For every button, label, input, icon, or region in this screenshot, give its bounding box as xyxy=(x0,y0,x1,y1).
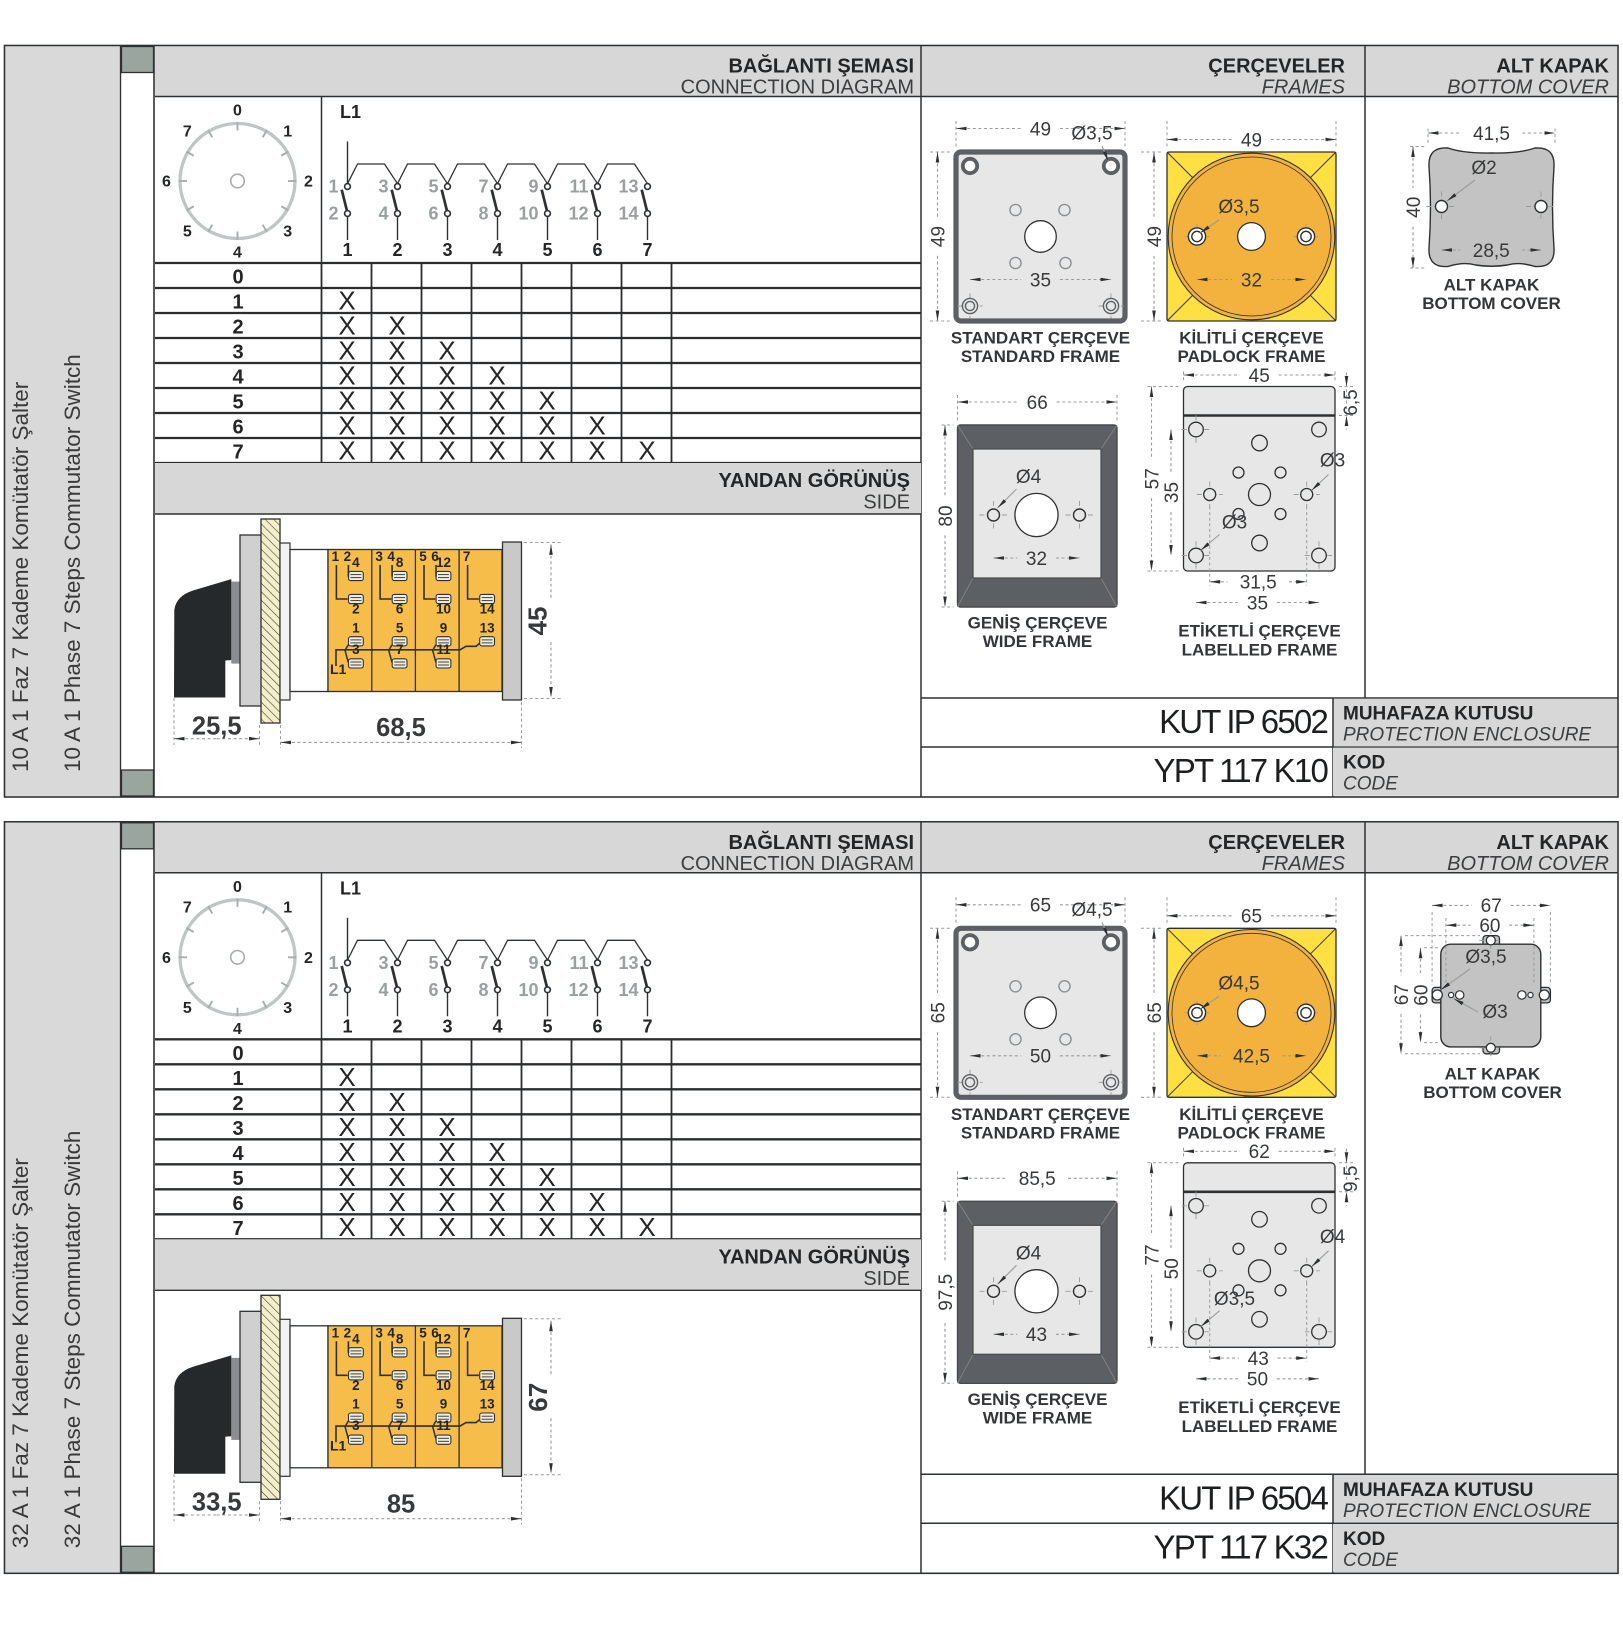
svg-text:25,5: 25,5 xyxy=(192,712,242,740)
svg-text:L1: L1 xyxy=(330,1437,347,1453)
svg-text:2: 2 xyxy=(232,317,243,339)
svg-text:42,5: 42,5 xyxy=(1233,1047,1270,1068)
svg-text:12: 12 xyxy=(436,1331,451,1346)
svg-text:12: 12 xyxy=(568,980,588,1000)
svg-text:6: 6 xyxy=(428,980,438,1000)
svg-text:4: 4 xyxy=(378,980,388,1000)
svg-text:50: 50 xyxy=(1030,1047,1051,1068)
svg-text:5: 5 xyxy=(428,177,438,197)
svg-text:X: X xyxy=(638,1212,655,1242)
svg-text:KOD: KOD xyxy=(1343,753,1385,774)
svg-text:X: X xyxy=(438,436,455,466)
svg-text:X: X xyxy=(538,436,555,466)
svg-text:YANDAN GÖRÜNÜŞ: YANDAN GÖRÜNÜŞ xyxy=(718,1245,910,1268)
svg-text:5: 5 xyxy=(396,620,404,635)
svg-text:2: 2 xyxy=(328,204,338,224)
svg-text:CODE: CODE xyxy=(1343,774,1398,795)
svg-text:4: 4 xyxy=(233,245,242,262)
svg-text:35: 35 xyxy=(1030,270,1051,291)
svg-text:4: 4 xyxy=(492,240,502,260)
svg-text:BAĞLANTI ŞEMASI: BAĞLANTI ŞEMASI xyxy=(728,830,914,854)
svg-text:3: 3 xyxy=(442,240,452,260)
svg-text:3: 3 xyxy=(283,224,292,241)
svg-text:PADLOCK FRAME: PADLOCK FRAME xyxy=(1178,1123,1326,1142)
svg-text:66: 66 xyxy=(1027,393,1048,414)
svg-text:5: 5 xyxy=(183,224,192,241)
svg-text:2: 2 xyxy=(232,1093,243,1115)
svg-text:11: 11 xyxy=(569,953,588,973)
svg-text:2: 2 xyxy=(344,1325,352,1340)
svg-text:STANDARD FRAME: STANDARD FRAME xyxy=(961,347,1120,366)
svg-text:9: 9 xyxy=(440,1397,448,1412)
svg-text:Ø4: Ø4 xyxy=(1320,1227,1346,1248)
svg-text:KUT IP 6502: KUT IP 6502 xyxy=(1159,703,1327,740)
svg-text:ÇERÇEVELER: ÇERÇEVELER xyxy=(1208,832,1345,854)
svg-text:41,5: 41,5 xyxy=(1473,124,1510,145)
svg-text:YPT 117 K10: YPT 117 K10 xyxy=(1154,752,1329,789)
svg-text:12: 12 xyxy=(568,204,588,224)
svg-text:L1: L1 xyxy=(340,878,361,898)
svg-text:4: 4 xyxy=(232,1143,244,1165)
svg-text:MUHAFAZA KUTUSU: MUHAFAZA KUTUSU xyxy=(1343,704,1533,725)
svg-text:MUHAFAZA KUTUSU: MUHAFAZA KUTUSU xyxy=(1343,1480,1533,1501)
svg-text:WIDE FRAME: WIDE FRAME xyxy=(983,1408,1093,1427)
svg-text:8: 8 xyxy=(396,555,404,570)
svg-text:Ø3: Ø3 xyxy=(1222,513,1247,534)
svg-text:FRAMES: FRAMES xyxy=(1262,853,1346,875)
svg-text:43: 43 xyxy=(1026,1325,1047,1346)
svg-text:80: 80 xyxy=(936,505,957,526)
svg-text:Ø3,5: Ø3,5 xyxy=(1218,197,1259,218)
svg-text:YPT 117 K32: YPT 117 K32 xyxy=(1154,1528,1328,1565)
svg-text:3: 3 xyxy=(232,1118,243,1140)
svg-text:4: 4 xyxy=(387,549,395,564)
svg-text:60: 60 xyxy=(1411,985,1432,1006)
svg-text:1: 1 xyxy=(328,953,338,973)
svg-text:KOD: KOD xyxy=(1343,1529,1385,1550)
svg-text:GENİŞ ÇERÇEVE: GENİŞ ÇERÇEVE xyxy=(968,1390,1108,1409)
svg-text:3: 3 xyxy=(378,953,388,973)
svg-text:13: 13 xyxy=(480,620,496,635)
svg-text:2: 2 xyxy=(352,602,360,617)
svg-text:3: 3 xyxy=(442,1016,452,1036)
svg-text:4: 4 xyxy=(492,1016,502,1036)
svg-text:8: 8 xyxy=(396,1331,404,1346)
svg-text:ALT KAPAK: ALT KAPAK xyxy=(1496,832,1609,854)
svg-text:67: 67 xyxy=(523,1383,553,1412)
svg-text:6: 6 xyxy=(428,204,438,224)
svg-text:97,5: 97,5 xyxy=(936,1274,957,1311)
svg-text:10: 10 xyxy=(436,602,451,617)
svg-text:5: 5 xyxy=(542,1016,552,1036)
svg-text:35: 35 xyxy=(1247,593,1268,614)
svg-text:68,5: 68,5 xyxy=(376,714,426,742)
svg-text:5: 5 xyxy=(419,549,427,564)
svg-text:4: 4 xyxy=(352,1331,360,1346)
svg-text:7: 7 xyxy=(183,123,192,140)
svg-text:6: 6 xyxy=(592,1016,602,1036)
svg-text:PADLOCK FRAME: PADLOCK FRAME xyxy=(1178,347,1326,366)
svg-text:7: 7 xyxy=(463,1325,471,1340)
svg-text:2: 2 xyxy=(344,549,352,564)
svg-text:2: 2 xyxy=(352,1378,360,1393)
svg-text:3: 3 xyxy=(375,549,383,564)
svg-text:10: 10 xyxy=(518,204,538,224)
svg-text:10: 10 xyxy=(436,1378,451,1393)
svg-text:10 A 1 Phase 7 Steps Commutato: 10 A 1 Phase 7 Steps Commutator Switch xyxy=(60,354,85,772)
svg-text:CODE: CODE xyxy=(1343,1550,1398,1571)
svg-text:Ø4: Ø4 xyxy=(1016,1243,1042,1264)
svg-text:9: 9 xyxy=(440,620,448,635)
svg-text:BOTTOM COVER: BOTTOM COVER xyxy=(1423,1083,1562,1102)
svg-text:62: 62 xyxy=(1249,1142,1270,1163)
svg-text:Ø4,5: Ø4,5 xyxy=(1071,900,1112,921)
svg-text:3: 3 xyxy=(378,177,388,197)
svg-text:WIDE FRAME: WIDE FRAME xyxy=(983,632,1093,651)
svg-text:GENİŞ ÇERÇEVE: GENİŞ ÇERÇEVE xyxy=(968,614,1108,633)
svg-text:32: 32 xyxy=(1241,270,1262,291)
svg-text:7: 7 xyxy=(642,240,652,260)
svg-text:65: 65 xyxy=(1030,896,1051,917)
svg-text:ALT KAPAK: ALT KAPAK xyxy=(1496,56,1609,78)
svg-text:6: 6 xyxy=(396,1378,404,1393)
svg-text:KİLİTLİ ÇERÇEVE: KİLİTLİ ÇERÇEVE xyxy=(1179,329,1324,348)
svg-text:SIDE: SIDE xyxy=(863,492,910,514)
svg-text:1: 1 xyxy=(352,620,360,635)
svg-text:32: 32 xyxy=(1026,549,1047,570)
svg-text:13: 13 xyxy=(618,177,638,197)
svg-text:CONNECTION DIAGRAM: CONNECTION DIAGRAM xyxy=(681,77,914,99)
svg-text:14: 14 xyxy=(480,602,496,617)
svg-text:28,5: 28,5 xyxy=(1473,241,1510,262)
svg-text:8: 8 xyxy=(478,204,488,224)
svg-text:5: 5 xyxy=(232,392,243,414)
svg-text:Ø3,5: Ø3,5 xyxy=(1214,1289,1255,1310)
svg-text:13: 13 xyxy=(618,953,638,973)
svg-text:50: 50 xyxy=(1162,1258,1183,1279)
svg-text:1: 1 xyxy=(232,292,243,314)
svg-text:BAĞLANTI ŞEMASI: BAĞLANTI ŞEMASI xyxy=(728,54,914,78)
svg-text:6: 6 xyxy=(162,174,171,191)
svg-text:1: 1 xyxy=(332,549,340,564)
svg-text:9: 9 xyxy=(528,177,538,197)
svg-text:49: 49 xyxy=(1030,119,1051,140)
svg-text:2: 2 xyxy=(392,240,402,260)
svg-text:1: 1 xyxy=(342,240,352,260)
svg-text:6: 6 xyxy=(592,240,602,260)
svg-text:12: 12 xyxy=(436,555,451,570)
svg-text:85: 85 xyxy=(387,1490,415,1518)
svg-text:49: 49 xyxy=(1241,130,1262,151)
svg-text:7: 7 xyxy=(183,900,192,917)
svg-text:65: 65 xyxy=(1145,1002,1166,1023)
svg-text:STANDART ÇERÇEVE: STANDART ÇERÇEVE xyxy=(951,1105,1130,1124)
svg-text:50: 50 xyxy=(1247,1370,1268,1391)
svg-text:7: 7 xyxy=(478,953,488,973)
svg-text:1: 1 xyxy=(342,1016,352,1036)
svg-text:77: 77 xyxy=(1142,1244,1163,1265)
svg-text:Ø2: Ø2 xyxy=(1471,158,1496,179)
svg-text:4: 4 xyxy=(352,555,360,570)
svg-text:Ø4: Ø4 xyxy=(1016,467,1042,488)
svg-text:X: X xyxy=(638,436,655,466)
svg-text:35: 35 xyxy=(1162,482,1183,503)
svg-text:40: 40 xyxy=(1404,197,1425,218)
svg-text:X: X xyxy=(338,436,355,466)
svg-text:ETİKETLİ ÇERÇEVE: ETİKETLİ ÇERÇEVE xyxy=(1178,1398,1340,1417)
svg-text:4: 4 xyxy=(378,204,388,224)
svg-text:7: 7 xyxy=(642,1016,652,1036)
svg-text:32 A 1 Faz 7 Kademe Komütatör: 32 A 1 Faz 7 Kademe Komütatör Şalter xyxy=(8,1158,33,1549)
svg-text:ALT KAPAK: ALT KAPAK xyxy=(1444,276,1540,295)
svg-text:SIDE: SIDE xyxy=(863,1268,910,1290)
svg-text:7: 7 xyxy=(232,442,243,464)
svg-text:8: 8 xyxy=(478,980,488,1000)
svg-text:0: 0 xyxy=(232,1043,243,1065)
svg-text:57: 57 xyxy=(1142,468,1163,489)
svg-text:3: 3 xyxy=(283,1000,292,1017)
svg-text:LABELLED FRAME: LABELLED FRAME xyxy=(1182,1417,1338,1436)
svg-text:32 A 1 Phase 7 Steps Commutato: 32 A 1 Phase 7 Steps Commutator Switch xyxy=(60,1131,85,1549)
svg-text:31,5: 31,5 xyxy=(1240,573,1277,594)
svg-text:13: 13 xyxy=(480,1397,496,1412)
svg-text:LABELLED FRAME: LABELLED FRAME xyxy=(1182,641,1338,660)
svg-text:Ø3,5: Ø3,5 xyxy=(1465,947,1506,968)
svg-text:2: 2 xyxy=(304,174,313,191)
svg-text:43: 43 xyxy=(1248,1349,1269,1370)
svg-text:BOTTOM COVER: BOTTOM COVER xyxy=(1422,294,1561,313)
svg-text:1: 1 xyxy=(352,1397,360,1412)
svg-text:BOTTOM COVER: BOTTOM COVER xyxy=(1447,77,1609,99)
svg-text:Ø3: Ø3 xyxy=(1320,451,1345,472)
svg-text:5: 5 xyxy=(542,240,552,260)
svg-text:6: 6 xyxy=(232,1193,243,1215)
svg-text:X: X xyxy=(488,436,505,466)
svg-text:3: 3 xyxy=(232,342,243,364)
svg-text:1: 1 xyxy=(283,123,292,140)
svg-text:7: 7 xyxy=(463,549,471,564)
svg-text:60: 60 xyxy=(1479,916,1500,937)
svg-text:14: 14 xyxy=(618,204,638,224)
svg-text:45: 45 xyxy=(1249,366,1270,387)
svg-text:33,5: 33,5 xyxy=(192,1489,242,1517)
svg-text:0: 0 xyxy=(232,267,243,289)
svg-text:L1: L1 xyxy=(330,661,347,677)
svg-text:49: 49 xyxy=(928,226,949,247)
svg-text:1: 1 xyxy=(328,177,338,197)
svg-text:L1: L1 xyxy=(340,102,361,122)
svg-text:ALT KAPAK: ALT KAPAK xyxy=(1445,1065,1541,1084)
svg-text:9,5: 9,5 xyxy=(1341,1166,1362,1192)
svg-text:Ø4,5: Ø4,5 xyxy=(1218,973,1259,994)
svg-text:FRAMES: FRAMES xyxy=(1262,77,1346,99)
svg-text:PROTECTION ENCLOSURE: PROTECTION ENCLOSURE xyxy=(1343,1501,1591,1522)
svg-text:65: 65 xyxy=(928,1002,949,1023)
svg-text:14: 14 xyxy=(480,1378,496,1393)
svg-text:7: 7 xyxy=(478,177,488,197)
svg-text:YANDAN GÖRÜNÜŞ: YANDAN GÖRÜNÜŞ xyxy=(718,469,910,492)
svg-text:10: 10 xyxy=(518,980,538,1000)
svg-text:6: 6 xyxy=(232,417,243,439)
svg-text:65: 65 xyxy=(1241,907,1262,928)
svg-text:X: X xyxy=(488,1212,505,1242)
svg-text:5: 5 xyxy=(183,1000,192,1017)
svg-text:1: 1 xyxy=(283,900,292,917)
svg-text:67: 67 xyxy=(1481,896,1502,917)
svg-text:6: 6 xyxy=(162,950,171,967)
svg-text:KUT IP 6504: KUT IP 6504 xyxy=(1159,1479,1328,1516)
svg-text:4: 4 xyxy=(233,1021,242,1038)
svg-text:CONNECTION DIAGRAM: CONNECTION DIAGRAM xyxy=(681,853,914,875)
svg-text:2: 2 xyxy=(304,950,313,967)
svg-text:10 A 1 Faz 7 Kademe Komütatör: 10 A 1 Faz 7 Kademe Komütatör Şalter xyxy=(8,381,33,772)
svg-text:6: 6 xyxy=(396,602,404,617)
svg-text:ETİKETLİ ÇERÇEVE: ETİKETLİ ÇERÇEVE xyxy=(1178,622,1340,641)
svg-text:ÇERÇEVELER: ÇERÇEVELER xyxy=(1208,56,1345,78)
svg-text:X: X xyxy=(588,436,605,466)
svg-text:5: 5 xyxy=(232,1168,243,1190)
svg-text:KİLİTLİ ÇERÇEVE: KİLİTLİ ÇERÇEVE xyxy=(1179,1105,1324,1124)
svg-text:1: 1 xyxy=(332,1325,340,1340)
svg-text:7: 7 xyxy=(232,1218,243,1240)
svg-text:X: X xyxy=(588,1212,605,1242)
svg-text:5: 5 xyxy=(419,1325,427,1340)
svg-text:9: 9 xyxy=(528,953,538,973)
svg-text:4: 4 xyxy=(232,367,244,389)
svg-text:1: 1 xyxy=(232,1068,243,1090)
svg-text:2: 2 xyxy=(392,1016,402,1036)
svg-text:5: 5 xyxy=(428,953,438,973)
svg-text:X: X xyxy=(338,1212,355,1242)
svg-text:Ø3,5: Ø3,5 xyxy=(1071,124,1112,145)
svg-text:6,5: 6,5 xyxy=(1341,389,1362,415)
svg-text:STANDARD FRAME: STANDARD FRAME xyxy=(961,1123,1120,1142)
svg-text:5: 5 xyxy=(396,1397,404,1412)
svg-text:2: 2 xyxy=(328,980,338,1000)
svg-text:0: 0 xyxy=(233,103,242,120)
svg-text:Ø3: Ø3 xyxy=(1482,1002,1507,1023)
svg-text:85,5: 85,5 xyxy=(1019,1169,1056,1190)
svg-text:STANDART ÇERÇEVE: STANDART ÇERÇEVE xyxy=(951,329,1130,348)
svg-text:PROTECTION ENCLOSURE: PROTECTION ENCLOSURE xyxy=(1343,725,1591,746)
svg-text:3: 3 xyxy=(375,1325,383,1340)
svg-text:11: 11 xyxy=(569,177,588,197)
svg-text:0: 0 xyxy=(233,879,242,896)
svg-text:X: X xyxy=(538,1212,555,1242)
svg-text:BOTTOM COVER: BOTTOM COVER xyxy=(1447,853,1609,875)
svg-text:X: X xyxy=(388,1212,405,1242)
svg-text:49: 49 xyxy=(1145,226,1166,247)
svg-text:67: 67 xyxy=(1392,984,1413,1005)
svg-text:45: 45 xyxy=(523,606,553,635)
svg-text:X: X xyxy=(388,436,405,466)
svg-text:14: 14 xyxy=(618,980,638,1000)
svg-text:4: 4 xyxy=(387,1325,395,1340)
svg-text:X: X xyxy=(438,1212,455,1242)
